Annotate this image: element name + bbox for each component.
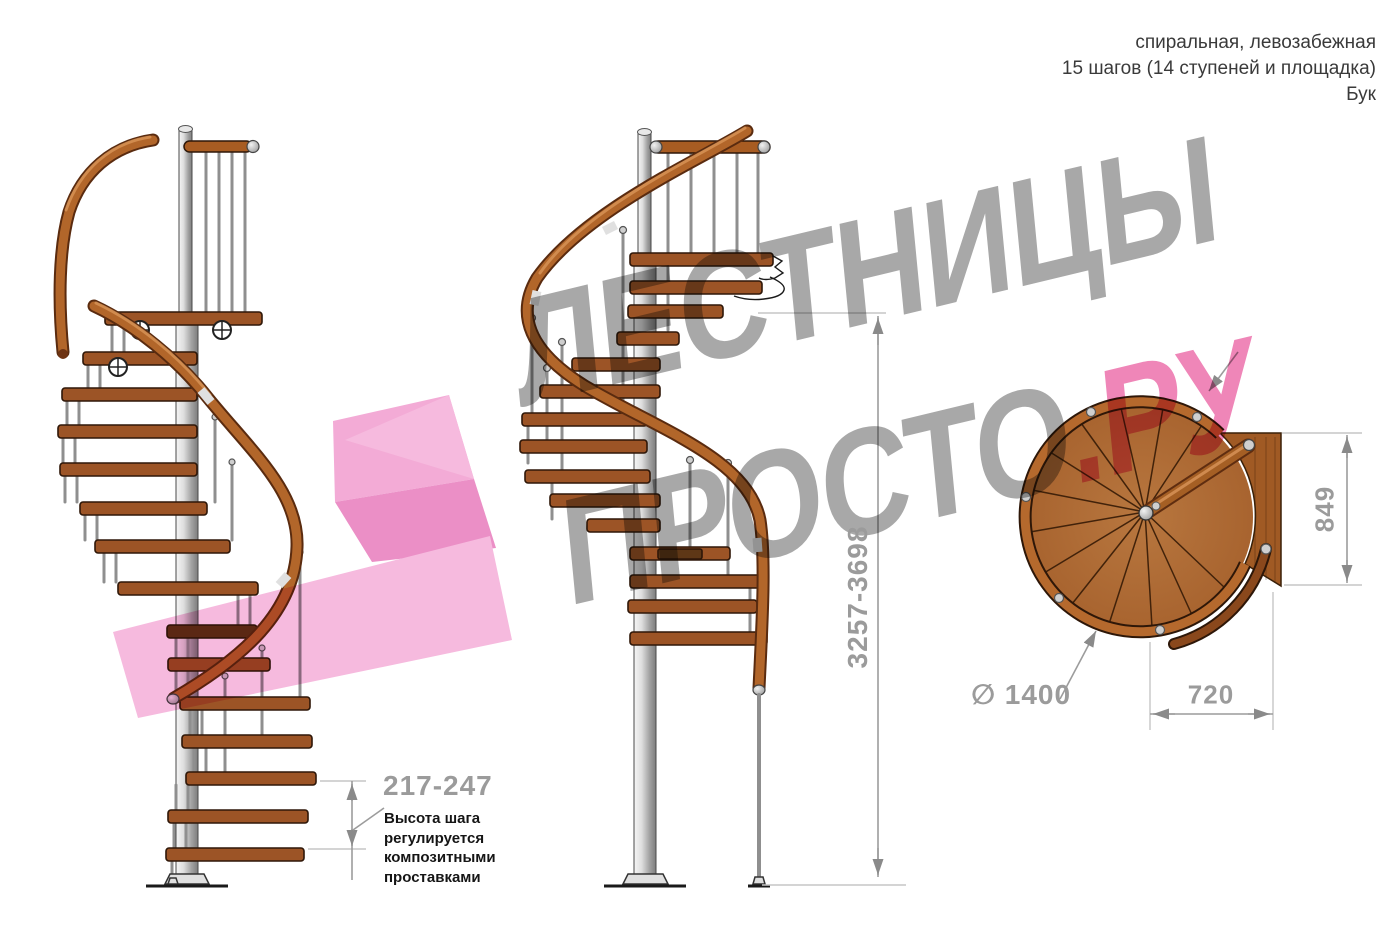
note-line: проставками [384, 868, 496, 888]
left-staircase-side-view [58, 126, 316, 887]
steps [58, 312, 316, 861]
step-height-note: Высота шага регулируется композитными пр… [384, 809, 496, 887]
note-line: композитными [384, 848, 496, 868]
step-height-dimension: 217-247 [383, 770, 493, 802]
total-height-dimension: 3257-3698 [842, 526, 874, 669]
product-spec-header: спиральная, левозабежная 15 шагов (14 ст… [1062, 30, 1376, 108]
note-line: Высота шага [384, 809, 496, 829]
spec-type: спиральная, левозабежная [1062, 30, 1376, 56]
spec-steps: 15 шагов (14 ступеней и площадка) [1062, 56, 1376, 82]
staircase-spec-sheet: ЛЕСТНИЦЫ ПРОСТО.РУ спиральная, левозабеж… [0, 0, 1400, 949]
landing-depth-dimension: 849 [1310, 486, 1341, 532]
step-width-dimension: 720 [1188, 680, 1234, 711]
spec-material: Бук [1062, 82, 1376, 108]
watermark-accent: .РУ [1061, 303, 1263, 516]
landing-handrail [184, 141, 252, 152]
note-line: регулируется [384, 829, 496, 849]
diameter-dimension: ∅ 1400 [971, 678, 1071, 711]
